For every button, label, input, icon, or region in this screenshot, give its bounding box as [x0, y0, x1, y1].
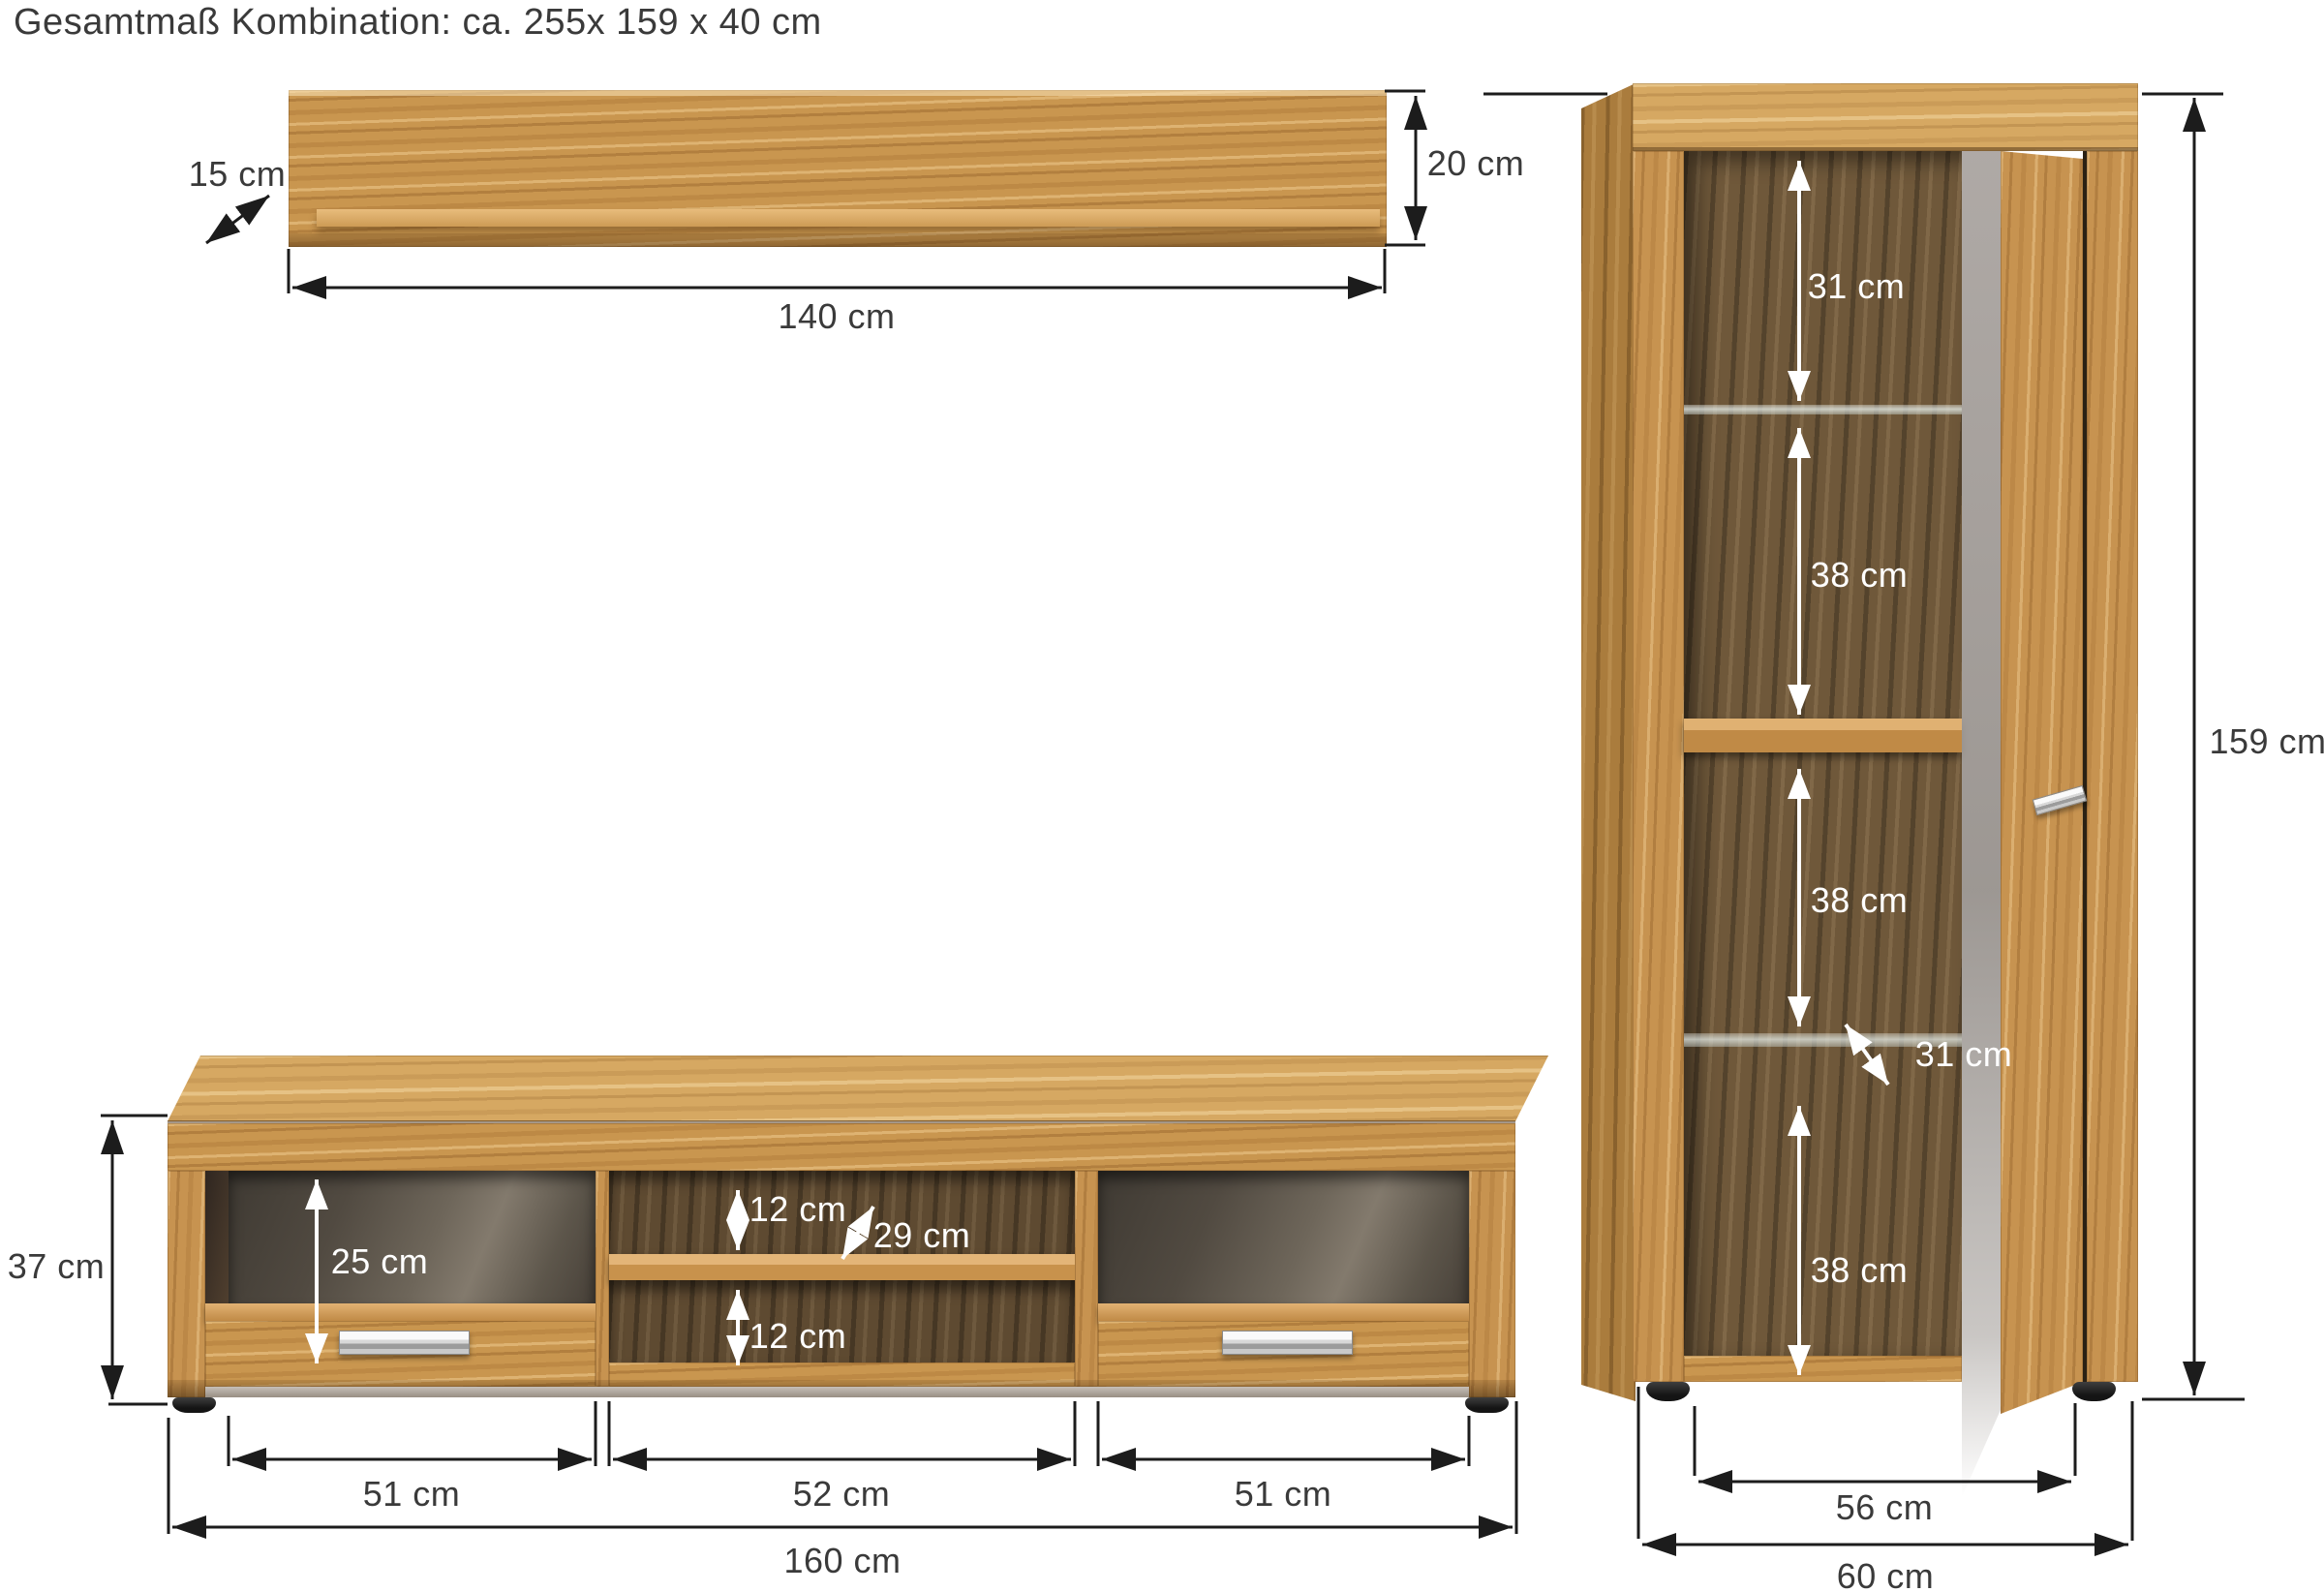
shelf-depth-arrow — [206, 196, 269, 243]
shelf-height-label: 20 cm — [1427, 143, 1525, 184]
cabinet-middle-section-label: 38 cm — [1811, 880, 1909, 921]
dimension-lines — [0, 0, 2324, 1592]
lowboard-shelf-depth-label: 29 cm — [873, 1215, 971, 1256]
cabinet-glass-shelf-depth-arrow — [1846, 1025, 1888, 1085]
lowboard-middle-width-label: 52 cm — [793, 1474, 891, 1515]
cabinet-inner-width-label: 56 cm — [1836, 1487, 1934, 1528]
furniture-dimension-diagram: Gesamtmaß Kombination: ca. 255x 159 x 40… — [0, 0, 2324, 1592]
lowboard-left-width-label: 51 cm — [363, 1474, 461, 1515]
lowboard-height-label: 37 cm — [8, 1246, 106, 1287]
cabinet-bottom-section-label: 38 cm — [1811, 1250, 1909, 1291]
lowboard-shelf-depth-arrow — [842, 1207, 873, 1259]
page-title: Gesamtmaß Kombination: ca. 255x 159 x 40… — [14, 2, 822, 44]
cabinet-width-label: 60 cm — [1837, 1556, 1935, 1592]
lowboard-width-label: 160 cm — [783, 1541, 901, 1581]
shelf-depth-label: 15 cm — [189, 154, 287, 195]
cabinet-glass-shelf-depth-label: 31 cm — [1915, 1034, 2013, 1075]
lowboard-right-width-label: 51 cm — [1235, 1474, 1332, 1515]
cabinet-upper-section-label: 38 cm — [1811, 555, 1909, 596]
lowboard-top-gap-label: 12 cm — [749, 1189, 847, 1230]
cabinet-height-label: 159 cm — [2209, 721, 2324, 762]
shelf-width-label: 140 cm — [778, 296, 895, 337]
lowboard-bottom-gap-label: 12 cm — [749, 1316, 847, 1357]
lowboard-compartment-height-label: 25 cm — [331, 1241, 429, 1282]
cabinet-top-section-label: 31 cm — [1808, 266, 1906, 307]
